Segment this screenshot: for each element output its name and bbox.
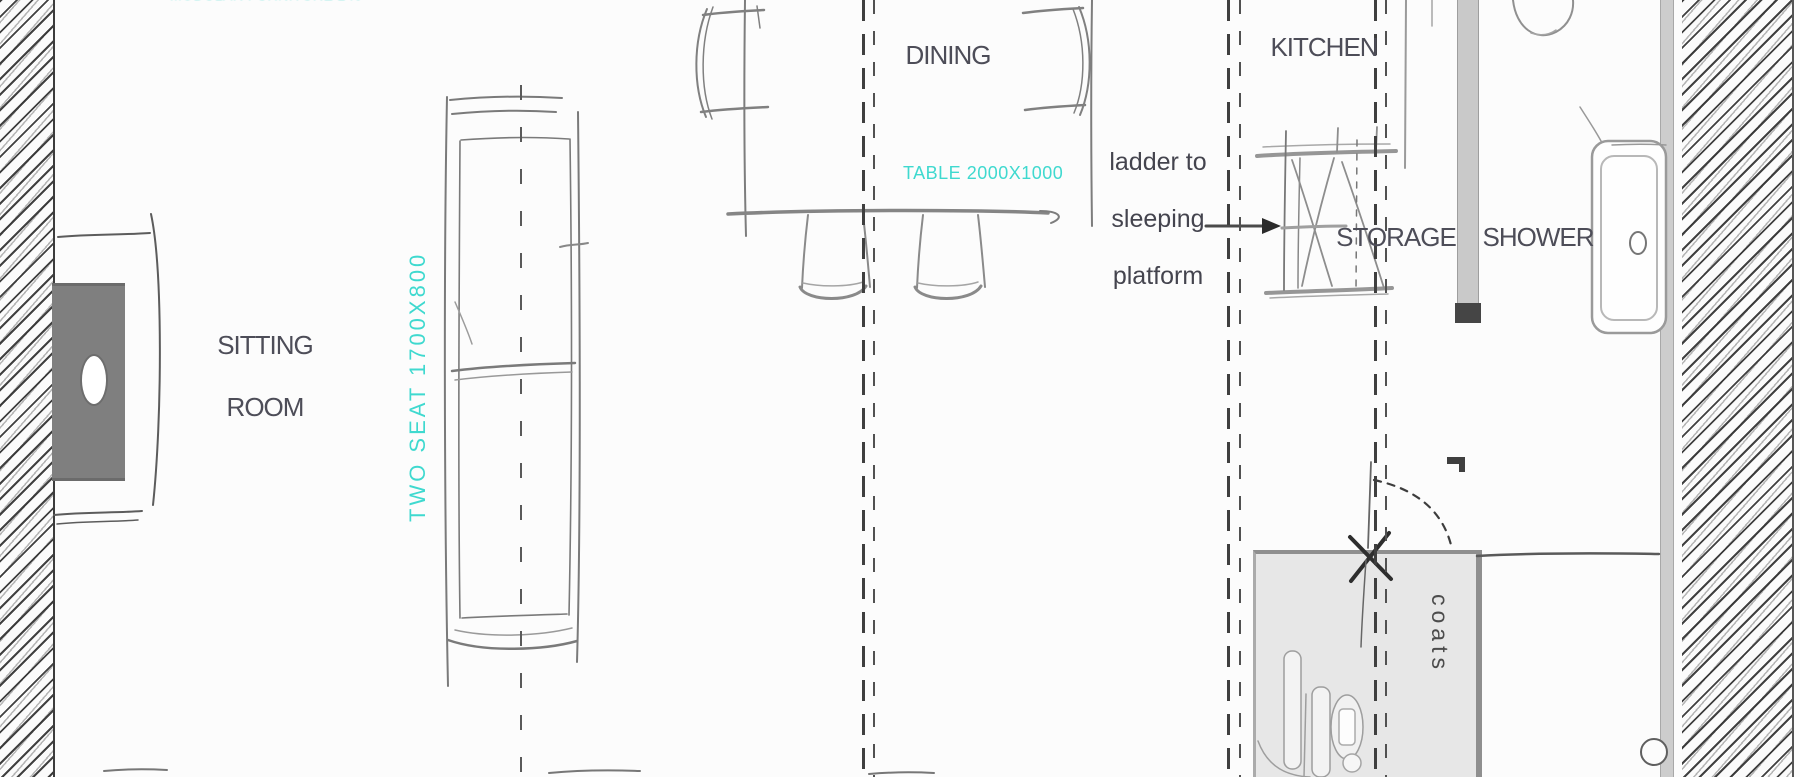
stove-hearth-surround bbox=[54, 214, 160, 524]
sitting-room-label: SITTING ROOM bbox=[185, 314, 345, 438]
partition-dashed-sofa bbox=[520, 85, 522, 777]
dining-label: DINING bbox=[906, 40, 991, 71]
bottom-edge-marks bbox=[104, 769, 934, 774]
partition-dashed-dining-a bbox=[862, 0, 865, 777]
sofa-size-annotation: TWO SEAT 1700X800 bbox=[405, 222, 431, 522]
dining-chair-left bbox=[696, 6, 768, 119]
ladder-note-line3: platform bbox=[1088, 248, 1228, 305]
door-strike-mark bbox=[1447, 457, 1465, 472]
hall-wall-line bbox=[1477, 553, 1659, 556]
truncated-size-annotation: MODULAR FURNITURE 2400X600 bbox=[170, 0, 362, 9]
partition-dashed-kitchen-a bbox=[1227, 0, 1230, 777]
table-size-annotation: TABLE 2000X1000 bbox=[903, 163, 1063, 184]
partition-dashed-kitchen-b bbox=[1239, 0, 1241, 777]
two-seat-sofa-sketch bbox=[445, 97, 588, 686]
floor-circle-marker bbox=[1641, 739, 1667, 765]
partition-dashed-storage-a bbox=[1374, 0, 1377, 777]
partition-dashed-storage-b bbox=[1385, 0, 1387, 777]
storage-label: STORAGE bbox=[1336, 222, 1456, 253]
ladder-note-line1: ladder to bbox=[1088, 134, 1228, 191]
coats-label: coats bbox=[1426, 594, 1453, 744]
ladder-note: ladder to sleeping platform bbox=[1088, 134, 1228, 305]
kitchen-counter-edge bbox=[1405, 0, 1432, 168]
dining-table-sketch bbox=[728, 0, 1092, 236]
ladder-note-line2: sleeping bbox=[1088, 191, 1228, 248]
floor-plan-canvas: SITTING ROOM DINING KITCHEN STORAGE SHOW… bbox=[0, 0, 1800, 777]
shower-basin-sketch bbox=[1580, 107, 1666, 333]
partition-dashed-dining-b bbox=[873, 0, 875, 777]
stored-items-sketch bbox=[1258, 651, 1363, 777]
toilet-sketch bbox=[1513, 0, 1573, 35]
shower-label: SHOWER bbox=[1483, 222, 1594, 253]
dining-stool-1 bbox=[800, 215, 870, 299]
kitchen-label: KITCHEN bbox=[1270, 32, 1377, 63]
door-swing-arc bbox=[1368, 462, 1452, 549]
dining-stool-2 bbox=[915, 215, 985, 299]
dining-chair-right bbox=[1023, 7, 1090, 115]
